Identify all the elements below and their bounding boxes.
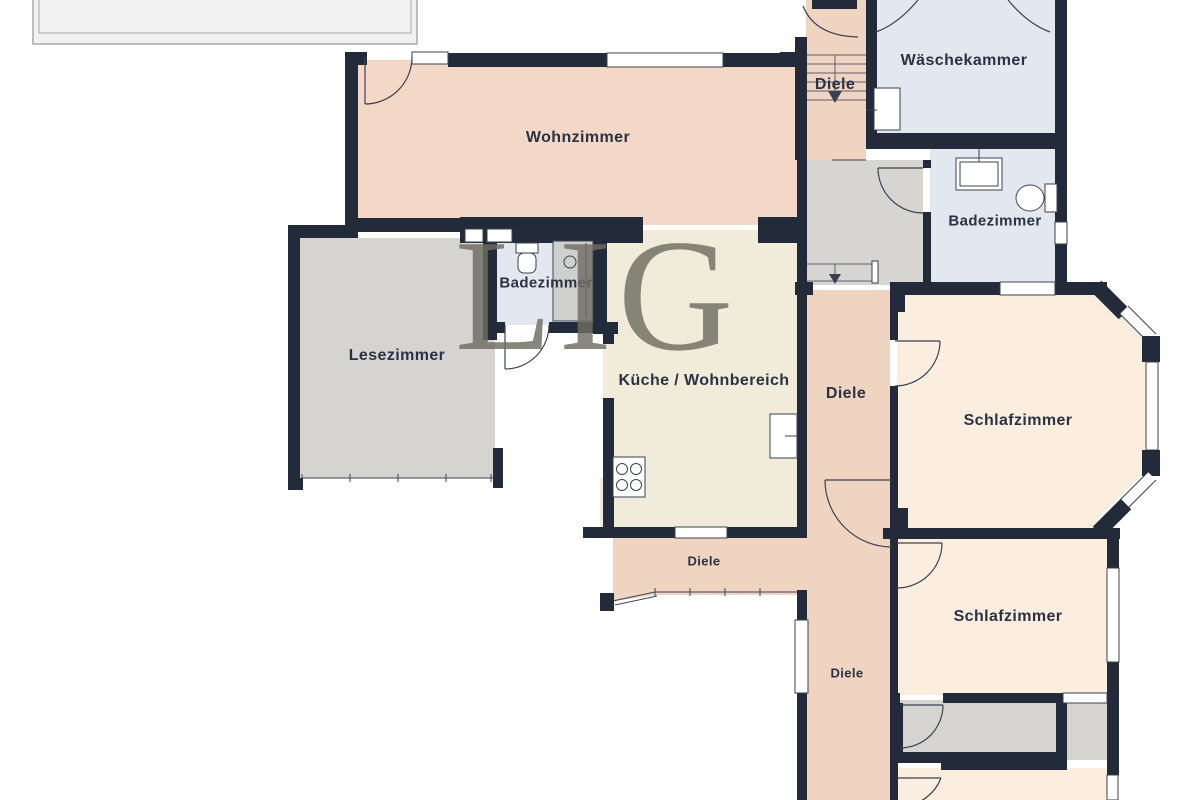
floorplan-page: Wohnzimmer Diele Wäschekammer Badezimmer…: [0, 0, 1200, 800]
room-label-lesezimmer: Lesezimmer: [349, 347, 446, 365]
room-schlafzimmer1-floor: [897, 292, 1155, 528]
watermark-text: LIG: [455, 215, 740, 375]
room-label-badezimmer-top: Badezimmer: [948, 213, 1041, 230]
room-hall-floor: [806, 160, 923, 285]
terrace-outline: [33, 0, 417, 44]
stove-icon: [613, 457, 645, 497]
radiator-icon: [770, 414, 797, 458]
room-diele-mid-floor: [806, 290, 890, 538]
room-label-schlafzimmer-1: Schlafzimmer: [964, 412, 1073, 430]
corridor-gray-floor: [1060, 697, 1107, 760]
room-label-diele-mid: Diele: [826, 385, 866, 403]
room-label-diele-bottom-2: Diele: [830, 666, 863, 681]
room-label-diele-top: Diele: [815, 76, 855, 94]
room-label-diele-bottom: Diele: [687, 554, 720, 569]
floorplan-drawing: [0, 0, 1200, 800]
toilet-icon: [1016, 184, 1057, 212]
room-label-wohnzimmer: Wohnzimmer: [526, 129, 630, 147]
room-label-waeschekammer: Wäschekammer: [901, 52, 1028, 70]
room-label-schlafzimmer-2: Schlafzimmer: [954, 608, 1063, 626]
room-closet-floor: [900, 700, 1060, 755]
